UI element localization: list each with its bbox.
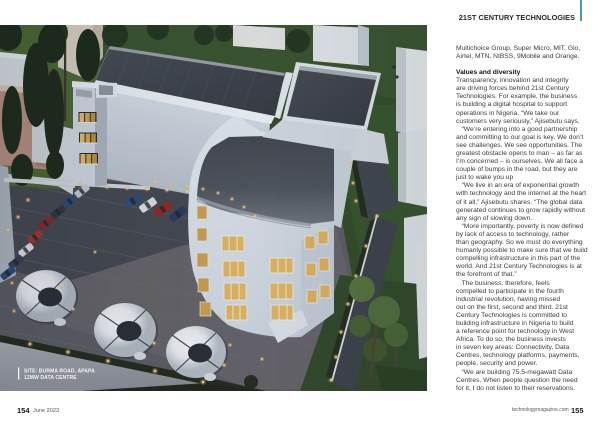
svg-text:12MW DATA CENTRE: 12MW DATA CENTRE xyxy=(24,375,77,381)
svg-text:SITE: BURMA ROAD, APAPA: SITE: BURMA ROAD, APAPA xyxy=(24,369,95,375)
